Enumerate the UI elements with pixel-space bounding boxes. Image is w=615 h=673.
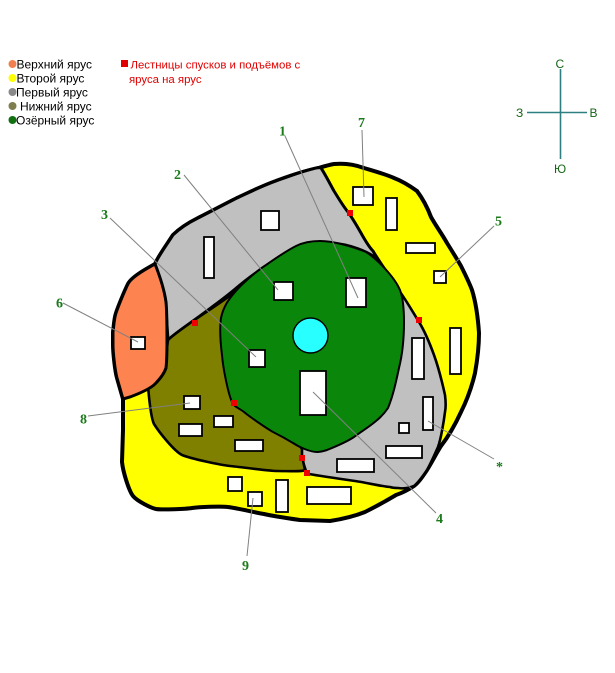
- svg-text:С: С: [556, 57, 565, 71]
- svg-text:5: 5: [495, 215, 502, 230]
- svg-text:8: 8: [80, 413, 87, 428]
- svg-text:Лестницы спусков и подъёмов с: Лестницы спусков и подъёмов с: [131, 60, 301, 72]
- svg-text:3: 3: [101, 208, 108, 223]
- svg-text:В: В: [590, 106, 598, 120]
- svg-text:яруса на ярус: яруса на ярус: [129, 74, 202, 86]
- svg-text:Ю: Ю: [554, 162, 566, 176]
- svg-text:2: 2: [174, 168, 181, 183]
- svg-text:Нижний ярус: Нижний ярус: [20, 100, 92, 114]
- svg-text:Второй ярус: Второй ярус: [17, 72, 85, 86]
- svg-text:6: 6: [56, 297, 63, 312]
- svg-text:4: 4: [436, 512, 443, 527]
- svg-text:*: *: [496, 460, 503, 475]
- svg-text:Верхний ярус: Верхний ярус: [17, 58, 93, 72]
- svg-text:1: 1: [279, 125, 286, 140]
- svg-text:7: 7: [358, 116, 365, 131]
- svg-text:Первый ярус: Первый ярус: [16, 86, 88, 100]
- svg-text:9: 9: [242, 559, 249, 574]
- svg-text:З: З: [516, 106, 523, 120]
- svg-text:Озёрный ярус: Озёрный ярус: [16, 114, 94, 128]
